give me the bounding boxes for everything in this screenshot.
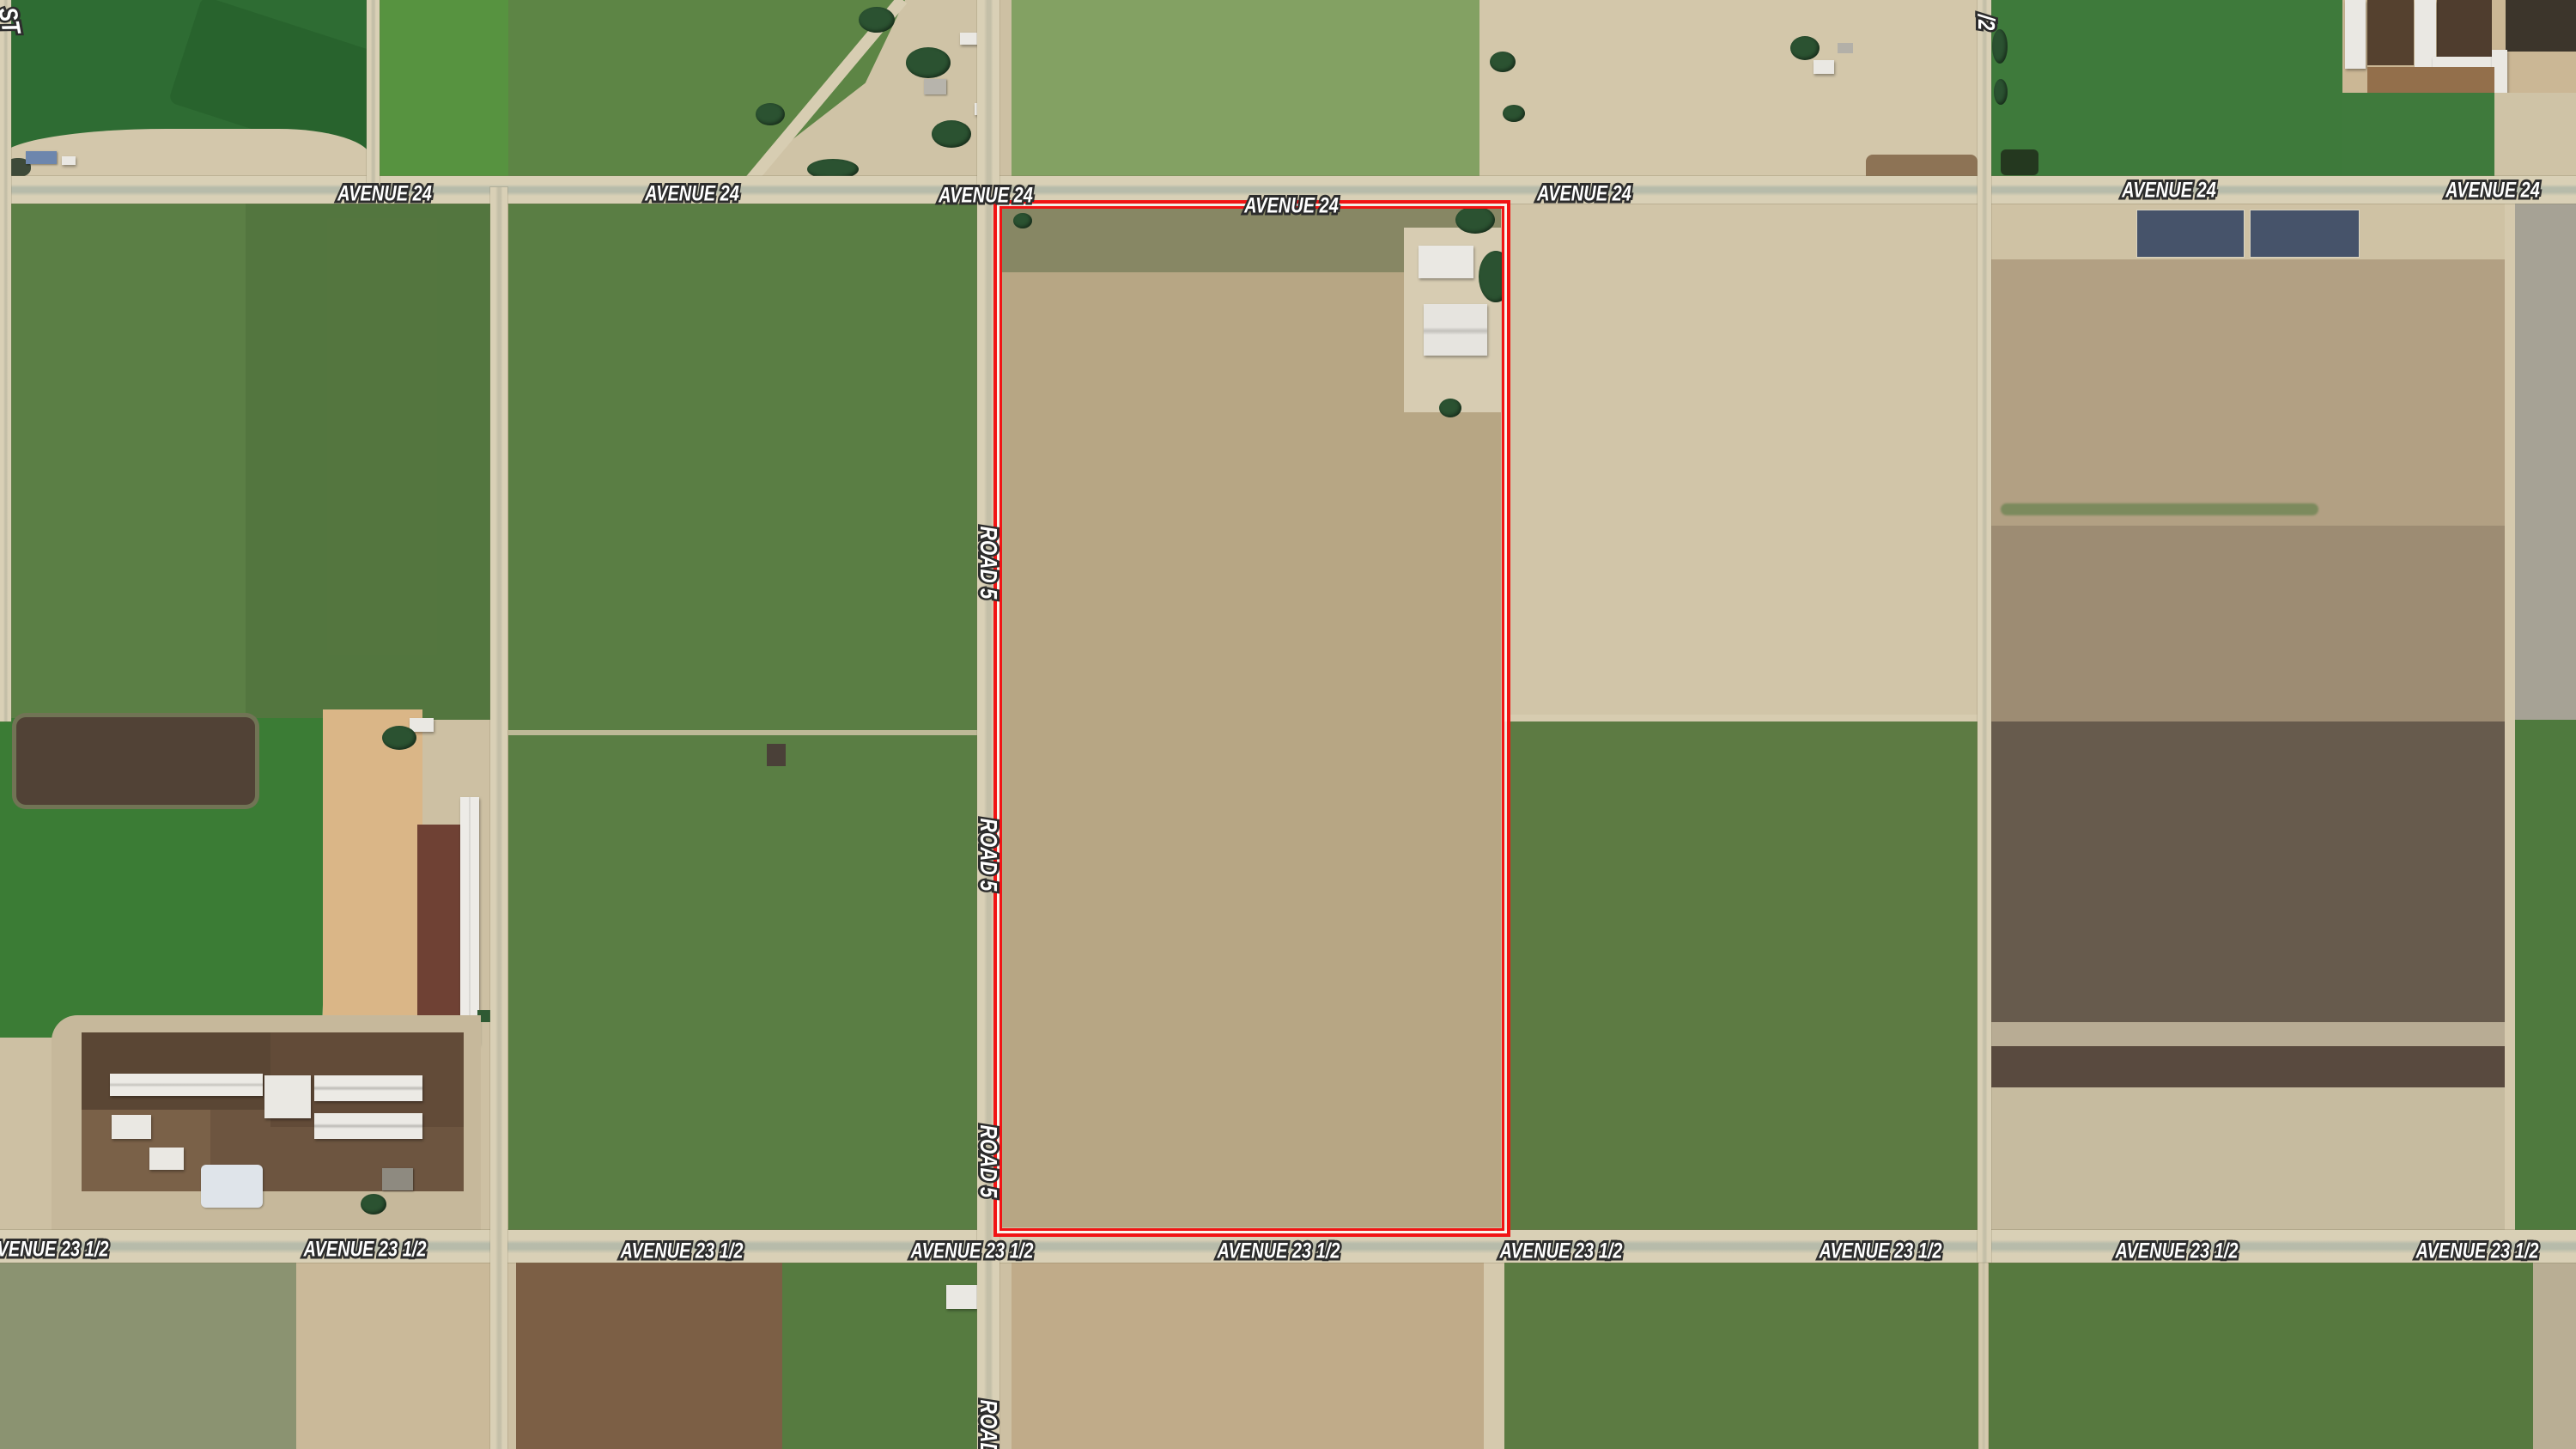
- plowed-field-light: [1991, 259, 2505, 527]
- plowed-band-dark: [1991, 1046, 2505, 1089]
- road-label-avenue-24: AVENUE 24: [645, 182, 739, 207]
- solar-array: [2250, 210, 2360, 258]
- road-label-avenue-23-1-2: AVENUE 23 1/2: [1819, 1239, 1941, 1264]
- house: [946, 1285, 977, 1309]
- farm-track: [508, 730, 987, 735]
- burn-debris: [2506, 0, 2576, 52]
- tree: [361, 1194, 386, 1215]
- dirt-south-corner: [2533, 1263, 2576, 1449]
- road-label-avenue-24: AVENUE 24: [1244, 194, 1339, 219]
- solar-array: [2136, 210, 2245, 258]
- road-label-avenue-23-1-2: AVENUE 23 1/2: [0, 1238, 109, 1263]
- maroon-strip: [417, 825, 465, 1044]
- vineyard-south-east: [1504, 1263, 1978, 1449]
- tree: [1994, 79, 2008, 105]
- tree: [1490, 52, 1516, 72]
- orchard-ne-of-road5: [1012, 0, 1479, 187]
- road-left-edge: [0, 0, 11, 721]
- vineyard-west-shade: [246, 191, 491, 720]
- tree: [859, 7, 895, 33]
- pen-dark: [82, 1032, 270, 1110]
- road-label-avenue-24: AVENUE 24: [337, 182, 432, 207]
- bare-field-east: [1504, 191, 1978, 720]
- farm-track: [1484, 1263, 1504, 1449]
- road-label-avenue-23-1-2: AVENUE 23 1/2: [1499, 1239, 1622, 1264]
- small-barn: [410, 718, 434, 732]
- weed-streak: [2001, 503, 2318, 515]
- dirt-orange: [2367, 67, 2494, 94]
- road-label-avenue-24: AVENUE 24: [2122, 179, 2216, 204]
- tree: [1992, 29, 2008, 64]
- dark-grove-corner: [2001, 149, 2038, 175]
- orchard-south: [1012, 1263, 1484, 1449]
- road-label-avenue-23-1-2: AVENUE 23 1/2: [620, 1239, 743, 1264]
- dirt-shoulder: [1991, 193, 2505, 262]
- burn-debris: [2437, 0, 2492, 62]
- road-label-road-5: ROAD 5: [975, 1125, 1002, 1198]
- vineyard-far-east: [2515, 720, 2576, 1233]
- road-label-avenue-23-1-2: AVENUE 23 1/2: [910, 1239, 1033, 1264]
- road-label-avenue-24: AVENUE 24: [2445, 179, 2540, 204]
- tree: [1790, 36, 1820, 60]
- plowed-field-dark: [1991, 721, 2505, 1024]
- road-label-road-5-1-2-partial: /2: [1972, 15, 2000, 31]
- plowed-field-mid: [1991, 526, 2505, 723]
- road-label-avenue-23-1-2: AVENUE 23 1/2: [2415, 1239, 2538, 1264]
- vineyard-east: [1504, 721, 1978, 1233]
- road-5-1-2: [1978, 0, 1991, 1263]
- long-barn: [2345, 0, 2366, 69]
- equipment-spot: [767, 744, 786, 766]
- parcel-outline: [993, 200, 1510, 1237]
- road-label-road-5: ROAD 5: [975, 819, 1002, 892]
- road-label-road-5: ROAD 5: [975, 1400, 1002, 1449]
- tree: [932, 120, 971, 148]
- shed-grey: [1838, 43, 1853, 53]
- road-label-avenue-24: AVENUE 24: [939, 184, 1033, 209]
- shed: [149, 1148, 184, 1170]
- fallow-smooth: [1991, 1087, 2505, 1233]
- compost-patch: [12, 713, 259, 809]
- grey-field-far-east: [2515, 193, 2576, 720]
- house-grey-roof: [382, 1168, 413, 1190]
- young-orchard-sw: [296, 1263, 494, 1449]
- house: [960, 33, 979, 45]
- map-canvas[interactable]: AVENUE 24 AVENUE 24 AVENUE 24 AVENUE 24 …: [0, 0, 2576, 1449]
- vineyard-bright-top: [380, 0, 508, 187]
- dirt-gap-column: [2505, 193, 2515, 1233]
- road-5-1-2-south: [1979, 1263, 1988, 1449]
- tree: [382, 726, 416, 750]
- dairy-barn: [110, 1074, 263, 1096]
- vineyard-south-far-east: [1989, 1263, 2576, 1449]
- green-field-ne: [1991, 0, 2345, 191]
- field-grey-green-sw: [0, 1263, 296, 1449]
- white-tarp: [201, 1165, 263, 1208]
- road-label-avenue-23-1-2: AVENUE 23 1/2: [1217, 1239, 1340, 1264]
- road-label-avenue-24: AVENUE 24: [1537, 182, 1631, 207]
- dairy-barn: [314, 1075, 422, 1101]
- road-label-road-5: ROAD 5: [975, 527, 1002, 600]
- vineyard-center: [508, 191, 987, 1233]
- brown-field-south: [516, 1263, 782, 1449]
- dairy-barn: [314, 1113, 422, 1139]
- road-label-avenue-23-1-2: AVENUE 23 1/2: [303, 1238, 426, 1263]
- tree: [756, 103, 785, 125]
- dirt-gap-trees: [1479, 0, 1540, 187]
- sandy-field: [323, 709, 422, 1040]
- farm-building: [62, 156, 76, 165]
- road-label-avenue-23-1-2: AVENUE 23 1/2: [2115, 1239, 2238, 1264]
- shed: [112, 1115, 151, 1139]
- farm-house: [1814, 60, 1834, 74]
- blue-roof-barn: [26, 151, 57, 164]
- tree: [906, 47, 951, 78]
- house-grey: [924, 79, 946, 94]
- road-label-street-partial: ST: [0, 5, 25, 36]
- burn-debris: [2367, 0, 2414, 65]
- tree: [1503, 105, 1525, 122]
- road-west: [490, 187, 507, 1449]
- farm-track: [1504, 715, 1978, 721]
- long-white-barn: [460, 797, 479, 1044]
- plowed-band-light: [1991, 1022, 2505, 1048]
- dairy-barn: [264, 1075, 311, 1118]
- road-north-short: [367, 0, 380, 189]
